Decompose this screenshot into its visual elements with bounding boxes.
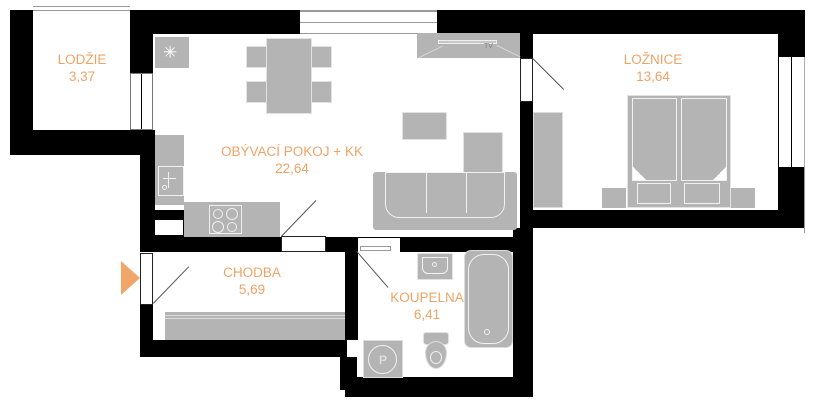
entrance-door-swing <box>153 266 189 303</box>
closet-track-line <box>165 318 345 319</box>
room-label-living-room: OBÝVACÍ POKOJ + KK 22,64 <box>212 144 372 178</box>
bedroom-door-swing <box>532 58 564 90</box>
washing-machine: P <box>363 340 403 378</box>
sofa-seat-outline <box>385 172 505 218</box>
drain-icon <box>162 185 167 190</box>
window-mullion <box>791 57 792 167</box>
chair <box>311 81 332 103</box>
room-label-bathroom: KOUPELNA 6,41 <box>367 290 487 324</box>
wall <box>520 102 533 212</box>
room-name: LOŽNICE <box>593 52 713 69</box>
entrance-door-leaf <box>140 253 153 305</box>
room-name: CHODBA <box>192 265 312 282</box>
wardrobe <box>533 112 563 208</box>
entrance-arrow <box>121 261 140 295</box>
living-room-door-swing <box>281 200 316 237</box>
pillow <box>637 183 671 204</box>
wall <box>345 377 533 397</box>
room-label-hallway: CHODBA 5,69 <box>192 265 312 299</box>
chair <box>311 46 332 68</box>
boiler-unit: ✳ <box>155 37 189 68</box>
wall <box>513 228 533 397</box>
sofa-divider <box>466 173 467 213</box>
living-room-door-leaf <box>281 236 326 252</box>
facade-line <box>804 167 805 233</box>
room-area: 22,64 <box>212 161 372 178</box>
bathroom-sink <box>417 253 453 280</box>
wall <box>520 34 533 58</box>
wall <box>130 10 300 34</box>
living-room-window <box>300 10 437 34</box>
room-area: 13,64 <box>593 69 713 86</box>
dining-table <box>266 38 312 114</box>
wall <box>140 305 153 340</box>
tv-line <box>419 46 443 58</box>
chair <box>246 46 267 68</box>
floor-plan: ✳ TV <box>0 0 816 400</box>
drain-icon <box>484 329 490 335</box>
tv-stand: TV <box>417 33 520 58</box>
faucet-icon <box>163 178 176 179</box>
burner-icon <box>226 208 238 220</box>
room-area: 5,69 <box>192 282 312 299</box>
washer-label: P <box>379 353 387 367</box>
room-area: 6,41 <box>367 307 487 324</box>
loggia-railing <box>33 6 130 11</box>
nightstand <box>602 188 626 208</box>
wall <box>345 252 358 340</box>
duvet-fold <box>633 167 646 180</box>
wall <box>140 340 347 357</box>
boiler-icon: ✳ <box>163 44 177 61</box>
sofa-divider <box>426 173 427 213</box>
room-label-lodzie: LODŽIE 3,37 <box>32 52 132 86</box>
burner-icon <box>213 209 223 219</box>
burner-icon <box>227 222 237 232</box>
coffee-table <box>402 112 447 140</box>
bedroom-door-leaf <box>520 58 533 102</box>
room-name: KOUPELNA <box>367 290 487 307</box>
door-frame-line <box>141 74 142 129</box>
room-name: OBÝVACÍ POKOJ + KK <box>212 144 372 161</box>
hallway-closet <box>165 312 345 340</box>
loggia-door <box>130 73 153 130</box>
drain-icon <box>432 262 437 267</box>
closet-track-line <box>165 315 345 316</box>
pillow <box>684 183 720 204</box>
duvet-fold <box>713 167 726 180</box>
wall <box>437 10 805 34</box>
burner-icon <box>212 221 224 233</box>
room-area: 3,37 <box>32 69 132 86</box>
toilet-bowl-outline <box>430 351 442 364</box>
shaft-niche <box>155 220 183 235</box>
bathroom-door-threshold <box>360 246 391 251</box>
tv-label: TV <box>484 43 493 50</box>
wall <box>520 210 805 228</box>
window-mullion <box>300 22 437 23</box>
wall <box>778 34 805 57</box>
wall <box>10 130 155 155</box>
toilet-bowl <box>425 341 447 369</box>
stove <box>209 205 242 234</box>
nightstand <box>731 188 755 208</box>
room-label-bedroom: LOŽNICE 13,64 <box>593 52 713 86</box>
chair <box>246 81 267 103</box>
room-name: LODŽIE <box>32 52 132 69</box>
tv-line <box>497 45 521 57</box>
bathroom-door-swing <box>356 251 388 288</box>
faucet-icon <box>168 172 169 188</box>
bedroom-window <box>778 57 805 167</box>
kitchen-sink <box>158 166 184 196</box>
